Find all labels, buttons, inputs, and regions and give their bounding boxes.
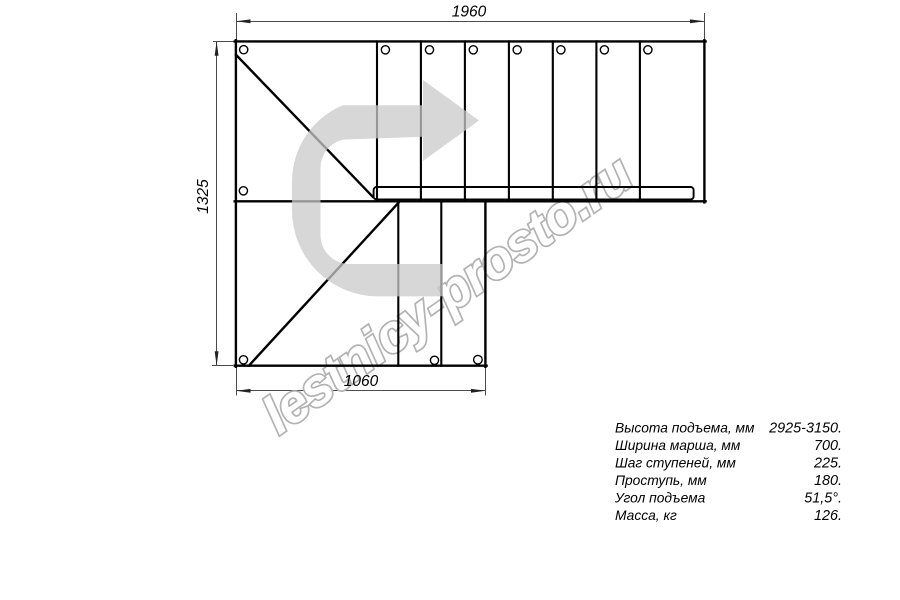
svg-text:2925-3150.: 2925-3150. (768, 421, 842, 437)
svg-text:Ширина марша, мм: Ширина марша, мм (615, 438, 741, 453)
svg-text:1325: 1325 (195, 179, 212, 214)
svg-text:Угол подъема: Угол подъема (614, 491, 706, 506)
svg-text:Масса, кг: Масса, кг (615, 508, 677, 523)
svg-text:Высота подъема, мм: Высота подъема, мм (615, 421, 755, 436)
svg-text:1960: 1960 (452, 4, 487, 21)
svg-text:Шаг ступеней, мм: Шаг ступеней, мм (615, 456, 736, 471)
svg-text:126.: 126. (814, 508, 842, 524)
svg-text:1060: 1060 (344, 373, 379, 390)
svg-text:700.: 700. (814, 438, 842, 454)
svg-text:180.: 180. (814, 473, 842, 489)
svg-text:225.: 225. (813, 456, 842, 472)
svg-text:51,5°.: 51,5°. (804, 491, 842, 507)
svg-text:Проступь, мм: Проступь, мм (615, 473, 707, 488)
